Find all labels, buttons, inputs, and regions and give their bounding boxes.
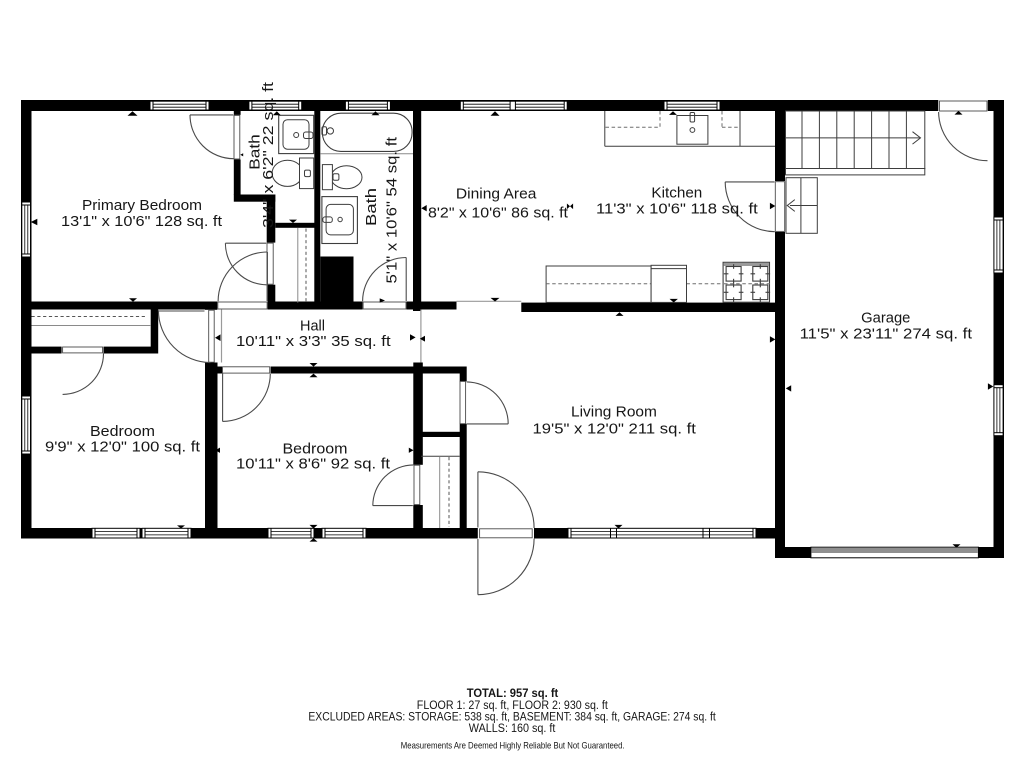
svg-text:9'9" x 12'0" 100 sq. ft: 9'9" x 12'0" 100 sq. ft xyxy=(45,439,200,455)
svg-text:11'5" x 23'11" 274 sq. ft: 11'5" x 23'11" 274 sq. ft xyxy=(800,327,972,343)
svg-text:8'2" x 10'6" 86 sq. ft: 8'2" x 10'6" 86 sq. ft xyxy=(428,206,568,222)
svg-text:Measurements Are Deemed Highly: Measurements Are Deemed Highly Reliable … xyxy=(401,740,625,751)
svg-text:Kitchen: Kitchen xyxy=(651,185,702,201)
svg-text:13'1" x 10'6" 128 sq. ft: 13'1" x 10'6" 128 sq. ft xyxy=(61,214,222,230)
svg-text:Bath: Bath xyxy=(364,188,380,226)
svg-text:Primary Bedroom: Primary Bedroom xyxy=(82,198,202,214)
svg-text:10'11" x 8'6" 92 sq. ft: 10'11" x 8'6" 92 sq. ft xyxy=(236,456,390,472)
svg-text:Dining Area: Dining Area xyxy=(456,187,537,203)
svg-text:Hall: Hall xyxy=(300,319,325,335)
svg-text:Bedroom: Bedroom xyxy=(90,424,155,440)
svg-text:11'3" x 10'6" 118 sq. ft: 11'3" x 10'6" 118 sq. ft xyxy=(596,202,758,218)
svg-text:Garage: Garage xyxy=(861,311,910,327)
svg-text:WALLS: 160 sq. ft: WALLS: 160 sq. ft xyxy=(469,721,556,735)
svg-text:19'5" x 12'0" 211 sq. ft: 19'5" x 12'0" 211 sq. ft xyxy=(533,422,696,438)
svg-text:Bedroom: Bedroom xyxy=(283,441,348,457)
svg-text:Living Room: Living Room xyxy=(571,405,657,421)
svg-text:10'11" x 3'3" 35 sq. ft: 10'11" x 3'3" 35 sq. ft xyxy=(236,334,391,350)
svg-text:5'1" x 10'6" 54 sq. ft: 5'1" x 10'6" 54 sq. ft xyxy=(385,137,401,284)
svg-text:3'4" x 6'2" 22 sq. ft: 3'4" x 6'2" 22 sq. ft xyxy=(261,82,277,228)
